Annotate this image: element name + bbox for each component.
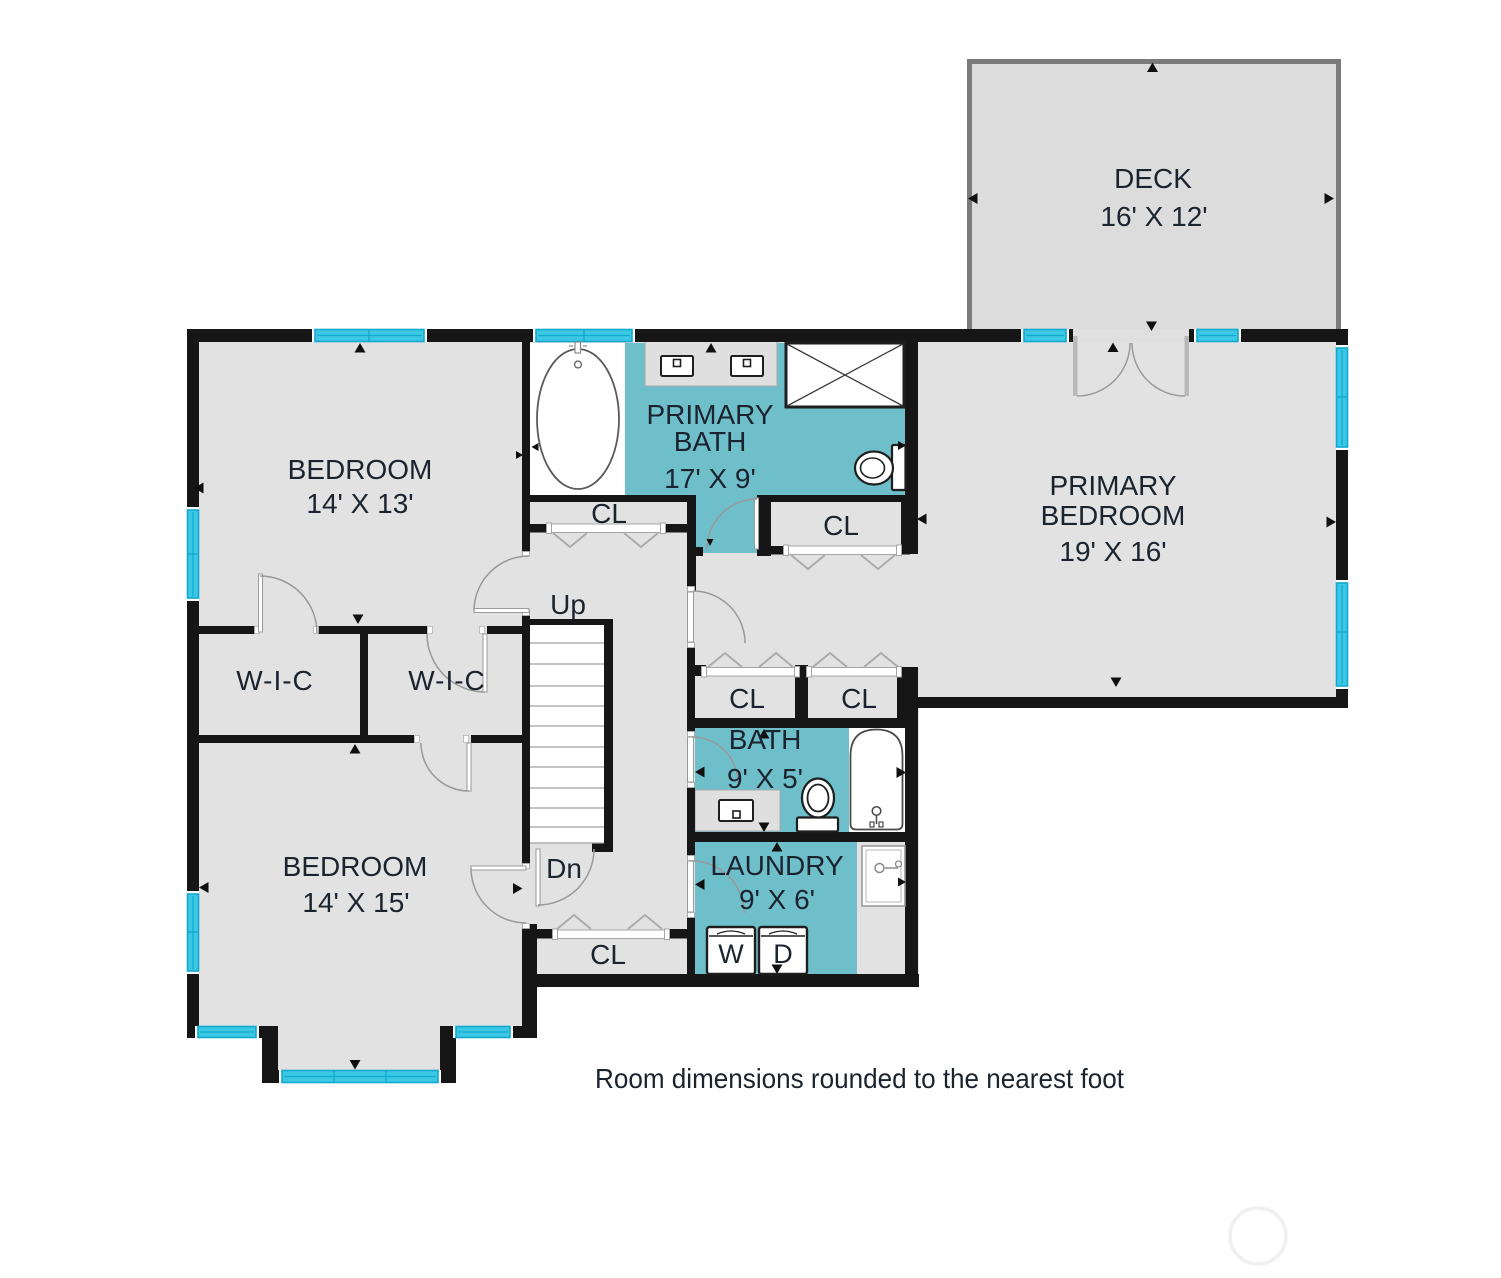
svg-text:CL: CL <box>841 683 877 714</box>
svg-text:CL: CL <box>591 498 627 529</box>
svg-text:19' X 16': 19' X 16' <box>1059 536 1166 567</box>
svg-text:Dn: Dn <box>546 853 582 884</box>
svg-text:BEDROOM: BEDROOM <box>283 851 428 882</box>
svg-text:16' X 12': 16' X 12' <box>1100 201 1207 232</box>
svg-text:Room dimensions rounded to the: Room dimensions rounded to the nearest f… <box>595 1063 1124 1094</box>
svg-text:W: W <box>718 939 744 969</box>
svg-text:CL: CL <box>590 939 626 970</box>
svg-text:BEDROOM: BEDROOM <box>1041 500 1186 531</box>
svg-text:17' X 9': 17' X 9' <box>664 463 756 494</box>
svg-text:W-I-C: W-I-C <box>236 665 314 696</box>
svg-text:CL: CL <box>729 683 765 714</box>
svg-text:DECK: DECK <box>1114 163 1192 194</box>
svg-text:BATH: BATH <box>729 724 802 755</box>
svg-text:BATH: BATH <box>674 426 747 457</box>
svg-text:CL: CL <box>823 510 859 541</box>
svg-text:9' X 5': 9' X 5' <box>727 763 803 794</box>
svg-text:W-I-C: W-I-C <box>408 665 486 696</box>
svg-text:PRIMARY: PRIMARY <box>1049 470 1176 501</box>
svg-text:D: D <box>773 939 793 969</box>
svg-text:LAUNDRY: LAUNDRY <box>710 850 844 881</box>
svg-text:Up: Up <box>550 589 586 620</box>
svg-text:BEDROOM: BEDROOM <box>288 454 433 485</box>
svg-text:9' X 6': 9' X 6' <box>739 884 815 915</box>
svg-text:14' X 13': 14' X 13' <box>306 488 413 519</box>
svg-text:14' X 15': 14' X 15' <box>302 887 409 918</box>
